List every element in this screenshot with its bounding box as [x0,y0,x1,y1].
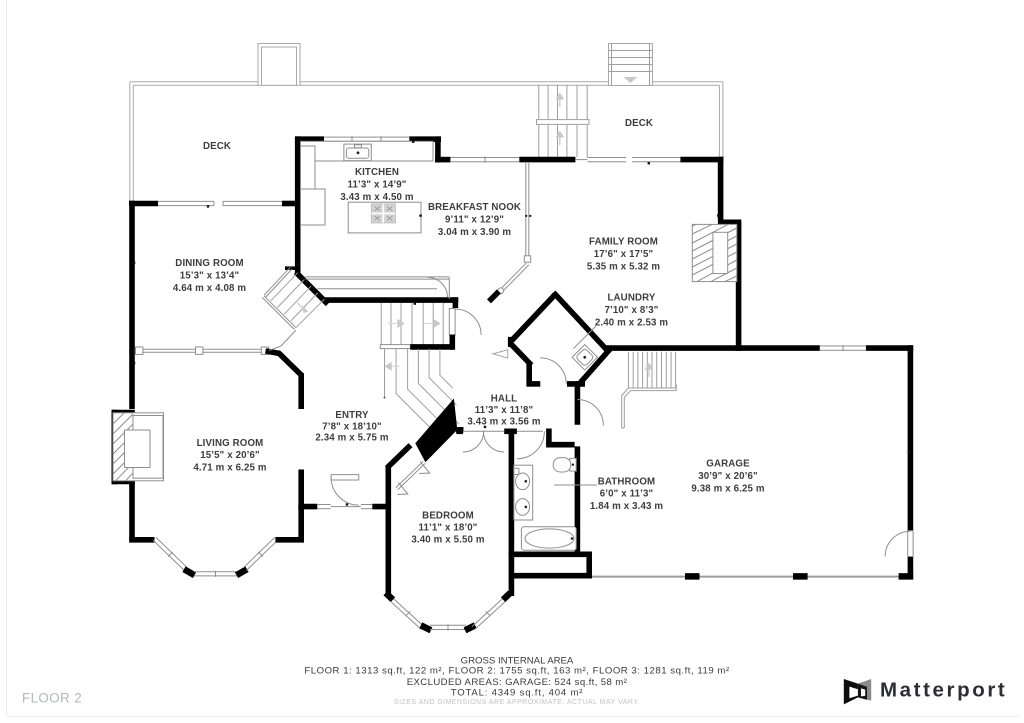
svg-text:TOTAL: 4349 sq.ft, 404 m²: TOTAL: 4349 sq.ft, 404 m² [451,688,583,699]
svg-text:3.40 m x 5.50 m: 3.40 m x 5.50 m [411,535,485,546]
svg-text:9.38 m x 6.25 m: 9.38 m x 6.25 m [691,483,765,494]
svg-text:BATHROOM: BATHROOM [598,476,656,487]
svg-text:5.35 m x 5.32 m: 5.35 m x 5.32 m [587,261,661,272]
svg-text:FAMILY ROOM: FAMILY ROOM [589,237,658,248]
svg-text:11’1" x 18’0": 11’1" x 18’0" [418,523,477,534]
svg-text:7’8" x 18’10": 7’8" x 18’10" [322,421,382,432]
svg-text:BEDROOM: BEDROOM [422,511,474,522]
svg-text:4.71 m x 6.25 m: 4.71 m x 6.25 m [193,463,267,474]
svg-text:7’10" x 8’3": 7’10" x 8’3" [604,305,658,316]
svg-text:GARAGE: GARAGE [706,459,750,470]
svg-text:BREAKFAST NOOK: BREAKFAST NOOK [428,202,521,213]
svg-text:LAUNDRY: LAUNDRY [607,293,655,304]
svg-text:FLOOR 1: 1313 sq.ft, 122 m², F: FLOOR 1: 1313 sq.ft, 122 m², FLOOR 2: 17… [304,665,730,676]
svg-text:17’6" x 17’5": 17’6" x 17’5" [594,249,654,260]
svg-text:LIVING ROOM: LIVING ROOM [197,438,264,449]
svg-text:30’9" x 20’6": 30’9" x 20’6" [698,471,758,482]
svg-text:KITCHEN: KITCHEN [355,167,399,178]
svg-text:SIZES AND DIMENSIONS ARE APPRO: SIZES AND DIMENSIONS ARE APPROXIMATE, AC… [394,699,640,706]
svg-text:DECK: DECK [625,118,653,129]
svg-text:9’11" x 12’9": 9’11" x 12’9" [445,214,504,225]
svg-text:2.34 m x 5.75 m: 2.34 m x 5.75 m [315,433,389,444]
svg-text:4.64 m x 4.08 m: 4.64 m x 4.08 m [173,283,247,294]
svg-text:11’3" x 11’8": 11’3" x 11’8" [475,405,534,416]
svg-text:DINING ROOM: DINING ROOM [175,258,243,269]
svg-text:HALL: HALL [491,394,517,405]
svg-text:3.04 m x 3.90 m: 3.04 m x 3.90 m [438,227,512,238]
svg-text:FLOOR 2: FLOOR 2 [22,691,82,706]
svg-text:1.84 m x 3.43 m: 1.84 m x 3.43 m [590,501,664,512]
svg-text:6’0" x 11’3": 6’0" x 11’3" [600,489,654,500]
svg-text:DECK: DECK [203,141,231,152]
svg-text:3.43 m x 3.56 m: 3.43 m x 3.56 m [467,417,541,428]
svg-text:2.40 m x 2.53 m: 2.40 m x 2.53 m [595,317,669,328]
svg-text:3.43 m x 4.50 m: 3.43 m x 4.50 m [340,192,414,203]
svg-text:Matterport: Matterport [880,679,1007,702]
svg-text:EXCLUDED AREAS: GARAGE: 524 sq: EXCLUDED AREAS: GARAGE: 524 sq.ft, 58 m² [407,677,628,688]
svg-text:15’3" x 13’4": 15’3" x 13’4" [180,271,240,282]
svg-text:ENTRY: ENTRY [335,410,369,421]
svg-text:11’3" x 14’9": 11’3" x 14’9" [347,179,406,190]
svg-text:15’5" x 20’6": 15’5" x 20’6" [200,450,260,461]
